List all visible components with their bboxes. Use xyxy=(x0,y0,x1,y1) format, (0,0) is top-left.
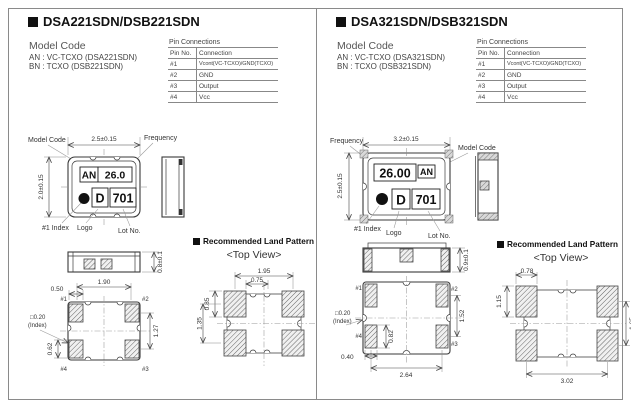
pin-no-cell: #2 xyxy=(168,70,197,81)
dim-land-pitch-x-text: 1.95 xyxy=(258,268,271,275)
land-pattern-right: 0.78 1.15 1.65 3.02 xyxy=(496,266,631,386)
dim-land-gap-text: 0.75 xyxy=(251,278,263,284)
col-connection: Connection xyxy=(197,48,279,59)
pin-connections-caption: Pin Connections xyxy=(477,39,586,46)
model-code-line: AN : VC-TCXO (DSA321SDN) xyxy=(337,53,445,62)
marking-model-code: AN xyxy=(420,167,433,177)
pad-label-3: #3 xyxy=(142,367,149,373)
dim-land-gap: 0.75 xyxy=(246,278,268,289)
dim-thickness-text: 0.9±0.1 xyxy=(463,249,470,271)
pin-no-cell: #3 xyxy=(476,81,505,92)
section-marker-icon xyxy=(497,241,504,248)
marking-lot-no: 701 xyxy=(113,192,134,206)
front-bottom-view-left: 0.8±0.1 1.90 0.50 #1 #2 xyxy=(28,240,178,380)
connection-cell: Output xyxy=(197,81,279,92)
table-header-row: Pin No. Connection xyxy=(476,48,586,59)
connection-cell: GND xyxy=(197,70,279,81)
connection-cell: GND xyxy=(505,70,587,81)
section-title-left: DSA221SDN/DSB221SDN xyxy=(28,14,200,29)
pin-no-cell: #2 xyxy=(476,70,505,81)
package-top-view xyxy=(61,149,147,225)
marking-frequency: 26.0 xyxy=(105,170,126,182)
package-front-view xyxy=(68,252,140,272)
dim-land-pitch-x-text: 3.02 xyxy=(561,378,574,385)
table-header-row: Pin No. Connection xyxy=(168,48,278,59)
connection-cell: Vcont(VC-TCXO)/GND(TCXO) xyxy=(505,59,587,70)
marking-frequency: 26.00 xyxy=(379,167,410,181)
frequency-callout: Frequency xyxy=(144,135,178,142)
dim-package-width-text: 3.2±0.15 xyxy=(393,136,419,143)
pin-no-cell: #1 xyxy=(168,59,197,70)
dim-thickness: 0.8±0.1 xyxy=(142,251,164,273)
pad-label-3: #3 xyxy=(451,342,458,348)
dim-land-pad-height: 1.15 xyxy=(496,286,514,317)
col-connection: Connection xyxy=(505,48,587,59)
package-front-view xyxy=(363,243,450,272)
table-row: #1 Vcont(VC-TCXO)/GND(TCXO) xyxy=(476,59,586,70)
model-code-heading: Model Code xyxy=(337,40,394,52)
dim-pad-width-text: 0.40 xyxy=(341,354,354,361)
package-drawing-left: 2.5±0.15 Model Code Frequency 2.0±0.15 xyxy=(20,122,312,244)
land-pattern-heading-text: Recommended Land Pattern xyxy=(507,240,618,249)
dim-package-height-text: 2.0±0.15 xyxy=(38,174,45,200)
section-title-right: DSA321SDN/DSB321SDN xyxy=(336,14,508,29)
top-view-label-right: <Top View> xyxy=(496,252,626,264)
dim-land-pad-width-text: 0.78 xyxy=(521,268,534,275)
section-marker-icon xyxy=(193,238,200,245)
section-marker-icon xyxy=(336,17,346,27)
pin-no-cell: #4 xyxy=(476,92,505,103)
pin-connections-right: Pin Connections Pin No. Connection #1 Vc… xyxy=(476,39,586,103)
connection-cell: Vcont(VC-TCXO)/GND(TCXO) xyxy=(197,59,279,70)
package-drawing-right: 3.2±0.15 Frequency Model Code 2.5±0.15 xyxy=(328,122,620,244)
package-side-view xyxy=(162,157,184,217)
land-pattern-heading-text: Recommended Land Pattern xyxy=(203,237,314,246)
col-pin-no: Pin No. xyxy=(168,48,197,59)
frequency-callout: Frequency xyxy=(330,138,364,145)
pad-label-4: #4 xyxy=(355,334,362,340)
model-code-callout: Model Code xyxy=(458,145,496,152)
dim-pad-width-text: 0.50 xyxy=(51,286,64,293)
pin-no-cell: #4 xyxy=(168,92,197,103)
index-mark-text: □0.20 xyxy=(30,315,46,321)
marking-logo: D xyxy=(95,192,104,206)
dim-package-height: 2.5±0.15 xyxy=(337,153,361,220)
dim-thickness: 0.9±0.1 xyxy=(452,248,470,272)
pad-label-1: #1 xyxy=(60,297,67,303)
connection-cell: Output xyxy=(505,81,587,92)
section-title-text: DSA221SDN/DSB221SDN xyxy=(43,14,200,29)
pin-connections-table: Pin No. Connection #1 Vcont(VC-TCXO)/GND… xyxy=(476,47,586,103)
table-row: #3 Output xyxy=(168,81,278,92)
index-mark-text: □0.20 xyxy=(335,311,351,317)
model-code-heading: Model Code xyxy=(29,40,86,52)
connection-cell: Vcc xyxy=(505,92,587,103)
datasheet-page: DSA221SDN/DSB221SDN Model Code AN : VC-T… xyxy=(0,0,631,408)
model-code-line: AN : VC-TCXO (DSA221SDN) xyxy=(29,53,137,62)
table-row: #4 Vcc xyxy=(476,92,586,103)
dim-land-pitch-y-text: 1.35 xyxy=(197,317,204,330)
section-marker-icon xyxy=(28,17,38,27)
lot-no-callout: Lot No. xyxy=(118,228,141,235)
index-dot xyxy=(79,193,90,204)
marking-logo: D xyxy=(396,193,406,208)
pad-label-4: #4 xyxy=(60,367,67,373)
index-dot xyxy=(376,193,388,205)
land-pattern-heading-left: Recommended Land Pattern xyxy=(193,237,314,246)
pad-label-2: #2 xyxy=(142,297,149,303)
index-callout: #1 Index xyxy=(354,226,381,233)
model-code-line: BN : TCXO (DSB321SDN) xyxy=(337,62,431,71)
dim-pitch-y-text: 1.52 xyxy=(459,309,466,322)
dim-pitch-x-text: 2.64 xyxy=(400,372,413,379)
connection-cell: Vcc xyxy=(197,92,279,103)
pin-connections-left: Pin Connections Pin No. Connection #1 Vc… xyxy=(168,39,278,103)
pin-connections-table: Pin No. Connection #1 Vcont(VC-TCXO)/GND… xyxy=(168,47,278,103)
dim-package-width-text: 2.5±0.15 xyxy=(91,136,117,143)
index-callout: #1 Index xyxy=(42,225,69,232)
dim-pitch-y: 1.52 xyxy=(449,296,466,337)
dim-pad-height-text: 0.82 xyxy=(388,330,395,343)
land-pattern-heading-right: Recommended Land Pattern xyxy=(497,240,618,249)
pin-no-cell: #3 xyxy=(168,81,197,92)
dim-pad-height: 0.62 xyxy=(47,340,67,358)
land-pattern-left: 1.95 0.75 0.85 1.35 xyxy=(195,264,321,378)
pad-label-1: #1 xyxy=(355,286,362,292)
index-label-text: (Index) xyxy=(28,323,47,329)
dim-thickness-text: 0.8±0.1 xyxy=(157,251,164,273)
pin-no-cell: #1 xyxy=(476,59,505,70)
dim-land-pad-height-text: 1.15 xyxy=(496,295,503,308)
dim-land-pad-width: 0.78 xyxy=(516,268,537,284)
dim-pad-height-text: 0.62 xyxy=(47,342,54,355)
pad-label-2: #2 xyxy=(451,287,458,293)
front-bottom-view-right: 0.9±0.1 #1 #2 #4 #3 □0.20 (Index) 1.52 xyxy=(333,236,483,384)
index-mark-callout: □0.20 (Index) xyxy=(28,315,68,343)
marking-lot-no: 701 xyxy=(416,193,437,207)
table-row: #3 Output xyxy=(476,81,586,92)
package-side-view xyxy=(476,153,499,220)
table-row: #2 GND xyxy=(168,70,278,81)
dim-pitch-x-text: 1.90 xyxy=(98,279,111,286)
model-code-callout: Model Code xyxy=(28,137,66,144)
logo-callout: Logo xyxy=(77,225,93,232)
dim-package-height-text: 2.5±0.15 xyxy=(337,173,344,199)
col-pin-no: Pin No. xyxy=(476,48,505,59)
table-row: #2 GND xyxy=(476,70,586,81)
top-view-label-left: <Top View> xyxy=(192,249,316,261)
pin-connections-caption: Pin Connections xyxy=(169,39,278,46)
table-row: #1 Vcont(VC-TCXO)/GND(TCXO) xyxy=(168,59,278,70)
dim-pitch-y-text: 1.27 xyxy=(153,324,160,337)
package-bottom-view xyxy=(60,296,150,366)
table-row: #4 Vcc xyxy=(168,92,278,103)
section-title-text: DSA321SDN/DSB321SDN xyxy=(351,14,508,29)
model-code-line: BN : TCXO (DSB221SDN) xyxy=(29,62,123,71)
marking-model-code: AN xyxy=(82,171,96,182)
